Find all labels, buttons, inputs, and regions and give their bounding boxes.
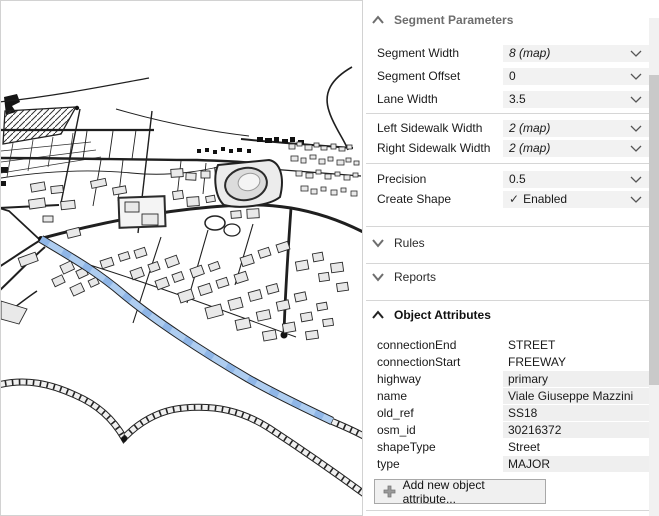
attr-key-shape-type: shapeType (377, 439, 436, 455)
street-network (1, 106, 362, 339)
hatched-field (1, 107, 101, 177)
param-row: Segment Width 8 (map) (377, 45, 649, 62)
right-sidewalk-width-value: 2 (map) (509, 141, 550, 155)
section-reports[interactable]: Reports (371, 269, 436, 285)
param-row: Left Sidewalk Width 2 (map) (377, 120, 649, 137)
attr-value-highway[interactable]: primary (503, 371, 649, 387)
attribute-row: type MAJOR (377, 456, 649, 473)
attr-key-connection-end: connectionEnd (377, 337, 456, 353)
attribute-row: connectionEnd STREET (377, 337, 649, 354)
segment-offset-value: 0 (509, 69, 516, 83)
scrollbar-thumb[interactable] (649, 75, 659, 385)
segment-offset-dropdown[interactable]: 0 (503, 68, 649, 85)
chevron-down-icon (630, 125, 642, 133)
add-button-label: Add new object attribute... (403, 478, 537, 506)
segment-width-value: 8 (map) (509, 46, 550, 60)
attr-value-shape-type[interactable]: Street (503, 439, 649, 455)
precision-label: Precision (377, 171, 426, 188)
divider (366, 163, 649, 164)
section-title: Reports (394, 270, 436, 284)
lane-width-value: 3.5 (509, 92, 526, 106)
attribute-row: name Viale Giuseppe Mazzini (377, 388, 649, 405)
precision-dropdown[interactable]: 0.5 (503, 171, 649, 188)
dense-district (289, 142, 359, 196)
chevron-up-icon (371, 310, 385, 320)
attribute-row: connectionStart FREEWAY (377, 354, 649, 371)
section-segment-parameters[interactable]: Segment Parameters (371, 12, 513, 28)
create-shape-dropdown[interactable]: ✓Enabled (503, 191, 649, 208)
param-row: Create Shape ✓Enabled (377, 191, 649, 208)
section-object-attributes[interactable]: Object Attributes (371, 307, 491, 323)
attribute-row: highway primary (377, 371, 649, 388)
add-object-attribute-button[interactable]: Add new object attribute... (374, 479, 546, 504)
param-row: Segment Offset 0 (377, 68, 649, 85)
inspector-panel: Segment Parameters Segment Width 8 (map)… (366, 0, 659, 516)
divider (366, 510, 649, 511)
attr-value-type[interactable]: MAJOR (503, 456, 649, 472)
attr-key-highway: highway (377, 371, 421, 387)
attr-key-type: type (377, 456, 400, 472)
map-drawing (1, 1, 362, 515)
left-sidewalk-width-value: 2 (map) (509, 121, 550, 135)
chevron-down-icon (630, 96, 642, 104)
section-title: Object Attributes (394, 308, 491, 322)
map-viewport[interactable] (0, 0, 363, 516)
chevron-down-icon (371, 238, 385, 248)
create-shape-value: Enabled (523, 192, 567, 206)
left-sidewalk-width-dropdown[interactable]: 2 (map) (503, 120, 649, 137)
attr-value-old-ref[interactable]: SS18 (503, 405, 649, 421)
chevron-down-icon (630, 145, 642, 153)
application-window: Segment Parameters Segment Width 8 (map)… (0, 0, 659, 516)
attr-key-osm-id: osm_id (377, 422, 416, 438)
right-sidewalk-width-dropdown[interactable]: 2 (map) (503, 140, 649, 157)
attr-key-connection-start: connectionStart (377, 354, 460, 370)
section-rules[interactable]: Rules (371, 235, 425, 251)
check-icon: ✓ (509, 192, 519, 206)
divider (366, 263, 649, 264)
divider (366, 300, 649, 301)
chevron-down-icon (371, 272, 385, 282)
plus-icon (383, 485, 396, 498)
attribute-row: old_ref SS18 (377, 405, 649, 422)
divider (366, 226, 649, 227)
attr-value-osm-id[interactable]: 30216372 (503, 422, 649, 438)
right-sidewalk-width-label: Right Sidewalk Width (377, 140, 490, 157)
param-row: Lane Width 3.5 (377, 91, 649, 108)
section-title: Segment Parameters (394, 13, 513, 27)
chevron-down-icon (630, 73, 642, 81)
segment-offset-label: Segment Offset (377, 68, 460, 85)
attr-key-name: name (377, 388, 407, 404)
section-title: Rules (394, 236, 425, 250)
buildings (1, 166, 348, 341)
divider (366, 113, 649, 114)
chevron-down-icon (630, 50, 642, 58)
attribute-row: shapeType Street (377, 439, 649, 456)
chevron-down-icon (630, 176, 642, 184)
chevron-down-icon (630, 196, 642, 204)
attr-value-connection-end[interactable]: STREET (503, 337, 649, 353)
stadium (205, 160, 282, 236)
segment-width-label: Segment Width (377, 45, 459, 62)
param-row: Precision 0.5 (377, 171, 649, 188)
attr-value-name[interactable]: Viale Giuseppe Mazzini (503, 388, 649, 404)
scrollbar-track[interactable] (649, 18, 659, 516)
lane-width-dropdown[interactable]: 3.5 (503, 91, 649, 108)
attr-key-old-ref: old_ref (377, 405, 414, 421)
chevron-up-icon (371, 15, 385, 25)
precision-value: 0.5 (509, 172, 526, 186)
segment-width-dropdown[interactable]: 8 (map) (503, 45, 649, 62)
attr-value-connection-start[interactable]: FREEWAY (503, 354, 649, 370)
left-sidewalk-width-label: Left Sidewalk Width (377, 120, 482, 137)
railway-track (1, 382, 362, 496)
create-shape-label: Create Shape (377, 191, 451, 208)
lane-width-label: Lane Width (377, 91, 438, 108)
param-row: Right Sidewalk Width 2 (map) (377, 140, 649, 157)
attribute-row: osm_id 30216372 (377, 422, 649, 439)
